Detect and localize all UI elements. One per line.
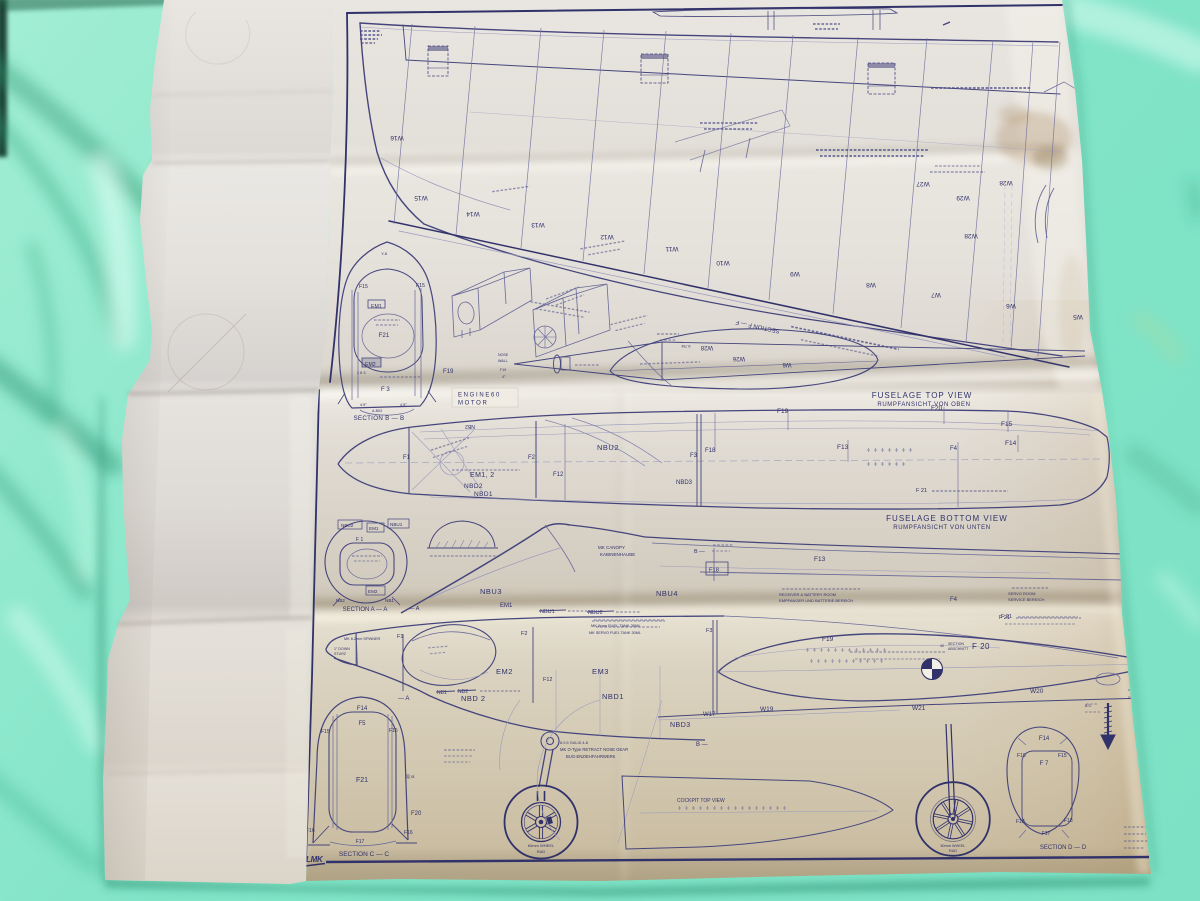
svg-text:F 1: F 1 bbox=[356, 537, 363, 543]
svg-text:STURZ: STURZ bbox=[334, 652, 347, 656]
svg-text:W21: W21 bbox=[912, 705, 926, 712]
svg-text:W13: W13 bbox=[531, 221, 545, 228]
svg-text:EM2: EM2 bbox=[368, 589, 378, 594]
svg-text:F15: F15 bbox=[1001, 421, 1013, 428]
svg-text:F1: F1 bbox=[403, 455, 411, 461]
svg-text:MK 6.2mm SPINNER: MK 6.2mm SPINNER bbox=[344, 637, 381, 641]
svg-text:SECTION: SECTION bbox=[948, 642, 964, 646]
svg-text:Y-8: Y-8 bbox=[381, 251, 388, 256]
svg-text:F14: F14 bbox=[1005, 440, 1017, 447]
svg-text:F 3: F 3 bbox=[381, 387, 390, 393]
svg-text:F13: F13 bbox=[814, 556, 826, 563]
svg-text:KABINENHAUBE: KABINENHAUBE bbox=[600, 552, 635, 557]
svg-text:W5: W5 bbox=[1073, 313, 1083, 320]
svg-text:W28: W28 bbox=[964, 232, 978, 239]
svg-text:W6: W6 bbox=[782, 361, 792, 367]
svg-text:F17: F17 bbox=[1042, 831, 1051, 837]
svg-text:B —: B — bbox=[694, 549, 705, 555]
svg-text:MK SERVO FUEL TANK 30ML: MK SERVO FUEL TANK 30ML bbox=[589, 631, 641, 635]
svg-text:F17: F17 bbox=[356, 839, 365, 845]
svg-text:F12: F12 bbox=[553, 472, 564, 478]
svg-text:W14: W14 bbox=[466, 210, 480, 217]
svg-text:SECTION D — D: SECTION D — D bbox=[1040, 845, 1087, 851]
svg-text:8-9.5 GULID 4-8: 8-9.5 GULID 4-8 bbox=[560, 741, 588, 745]
svg-text:F3: F3 bbox=[690, 453, 698, 459]
svg-text:F15: F15 bbox=[389, 728, 398, 734]
svg-text:NB1: NB1 bbox=[437, 690, 447, 696]
svg-text:BUG-ENZIEHFAHRWERK: BUG-ENZIEHFAHRWERK bbox=[566, 754, 616, 759]
svg-text:F1: F1 bbox=[397, 634, 403, 640]
svg-text:F5: F5 bbox=[358, 721, 366, 727]
svg-text:W29: W29 bbox=[956, 194, 970, 201]
svg-text:COCKPIT TOP VIEW: COCKPIT TOP VIEW bbox=[677, 798, 725, 804]
svg-text:F19: F19 bbox=[822, 636, 834, 643]
svg-text:EMPFANGER UND BATTERIE BEREIC: EMPFANGER UND BATTERIE BEREICH bbox=[779, 598, 853, 603]
svg-text:W20: W20 bbox=[1030, 688, 1044, 695]
svg-text:見 Ø.: 見 Ø. bbox=[406, 773, 415, 779]
svg-text:NBU4: NBU4 bbox=[656, 589, 678, 598]
svg-text:1 8 3: 1 8 3 bbox=[357, 371, 365, 375]
svg-text:F 7: F 7 bbox=[1040, 761, 1049, 767]
svg-text:ABSCHNITT: ABSCHNITT bbox=[948, 647, 969, 651]
svg-text:NBD 2: NBD 2 bbox=[461, 694, 486, 703]
svg-text:F4: F4 bbox=[950, 597, 958, 603]
svg-text:LMK: LMK bbox=[306, 855, 324, 864]
svg-text:F 21: F 21 bbox=[1001, 614, 1012, 620]
svg-text:W11: W11 bbox=[665, 245, 678, 252]
svg-text:SECTION A — A: SECTION A — A bbox=[343, 607, 388, 613]
svg-text:F19: F19 bbox=[777, 408, 789, 415]
svg-text:RUMPFANSICHT VON UNTEN: RUMPFANSICHT VON UNTEN bbox=[893, 525, 990, 531]
svg-text:MK CANOPY: MK CANOPY bbox=[598, 545, 625, 550]
svg-text:NBD2: NBD2 bbox=[464, 483, 483, 490]
svg-text:F19: F19 bbox=[443, 369, 454, 375]
svg-text:A-B03: A-B03 bbox=[372, 409, 382, 413]
svg-text:EM3: EM3 bbox=[592, 667, 609, 676]
svg-text:W28: W28 bbox=[700, 344, 713, 350]
svg-text:RUMPFANSICHT VON OBEN: RUMPFANSICHT VON OBEN bbox=[877, 402, 970, 408]
svg-text:F15: F15 bbox=[321, 729, 330, 735]
svg-text:F21: F21 bbox=[379, 332, 390, 339]
svg-text:W15: W15 bbox=[414, 194, 428, 201]
svg-text:NBD3: NBD3 bbox=[670, 722, 691, 729]
svg-text:W28: W28 bbox=[999, 179, 1013, 186]
svg-text:ND2: ND2 bbox=[458, 689, 468, 695]
svg-text:F18: F18 bbox=[1016, 819, 1025, 825]
svg-text:F16: F16 bbox=[404, 830, 413, 836]
svg-text:NBU3: NBU3 bbox=[480, 587, 502, 596]
svg-text:60mm WHEEL: 60mm WHEEL bbox=[528, 843, 555, 848]
svg-text:F16: F16 bbox=[306, 828, 315, 834]
svg-text:F14: F14 bbox=[357, 706, 368, 712]
svg-text:EM2: EM2 bbox=[365, 362, 376, 368]
svg-text:B —: B — bbox=[696, 742, 708, 748]
svg-text:WALL: WALL bbox=[498, 359, 508, 363]
svg-text:W8: W8 bbox=[866, 281, 876, 288]
svg-text:F 21: F 21 bbox=[916, 488, 927, 494]
svg-text:FUSELAGE TOP VIEW: FUSELAGE TOP VIEW bbox=[872, 391, 973, 400]
svg-text:4°: 4° bbox=[502, 375, 506, 379]
svg-text:W6: W6 bbox=[1006, 302, 1016, 309]
svg-text:NBU1: NBU1 bbox=[390, 522, 403, 527]
svg-text:F 20: F 20 bbox=[972, 642, 990, 651]
svg-text:F18: F18 bbox=[705, 448, 716, 454]
svg-text:F10: F10 bbox=[1017, 753, 1026, 759]
svg-text:EM1: EM1 bbox=[369, 526, 379, 531]
svg-text:NBD1: NBD1 bbox=[602, 692, 624, 701]
svg-text:F15: F15 bbox=[1058, 753, 1067, 759]
svg-text:W12: W12 bbox=[600, 233, 614, 240]
svg-text:NB2: NB2 bbox=[465, 423, 475, 429]
svg-text:RAD: RAD bbox=[949, 849, 957, 853]
svg-text:F12: F12 bbox=[543, 677, 552, 683]
svg-text:F21: F21 bbox=[356, 777, 368, 784]
svg-text:W27: W27 bbox=[916, 180, 930, 187]
svg-text:F4: F4 bbox=[950, 446, 958, 452]
svg-text:SECTION B — B: SECTION B — B bbox=[353, 415, 404, 422]
svg-text:EM1: EM1 bbox=[371, 304, 382, 310]
svg-text:F20: F20 bbox=[411, 811, 422, 817]
svg-text:E N G I N E 6 0: E N G I N E 6 0 bbox=[458, 393, 500, 399]
svg-text:RECEIVER & BATTERY ROOM: RECEIVER & BATTERY ROOM bbox=[779, 592, 836, 597]
svg-text:W26: W26 bbox=[732, 355, 745, 361]
svg-text:B.S.: B.S. bbox=[1085, 704, 1092, 708]
svg-text:NOSE: NOSE bbox=[498, 353, 509, 357]
svg-text:F13: F13 bbox=[837, 444, 849, 451]
svg-text:EM1, 2: EM1, 2 bbox=[470, 472, 495, 479]
svg-text:1° DOWN: 1° DOWN bbox=[334, 647, 350, 651]
svg-text:W16: W16 bbox=[390, 134, 404, 141]
svg-text:F15: F15 bbox=[359, 284, 368, 290]
svg-text:NBU2: NBU2 bbox=[588, 610, 603, 616]
svg-text:RAD: RAD bbox=[537, 849, 546, 854]
svg-text:NBU2: NBU2 bbox=[341, 523, 354, 528]
svg-text:NBD3: NBD3 bbox=[676, 480, 693, 486]
svg-text:W17: W17 bbox=[703, 712, 716, 718]
svg-text:NB1: NB1 bbox=[385, 598, 394, 603]
svg-text:NBU1: NBU1 bbox=[540, 609, 555, 615]
svg-text:NBU2: NBU2 bbox=[597, 443, 619, 452]
svg-text:F3: F3 bbox=[706, 628, 712, 634]
svg-text:F19: F19 bbox=[500, 368, 506, 372]
svg-text:60mm WHEEL: 60mm WHEEL bbox=[940, 844, 965, 848]
svg-text:NB2: NB2 bbox=[336, 598, 345, 603]
svg-text:40: 40 bbox=[940, 644, 944, 648]
svg-text:FUSELAGE BOTTOM VIEW: FUSELAGE BOTTOM VIEW bbox=[886, 514, 1008, 523]
svg-text:— A: — A bbox=[398, 696, 409, 702]
svg-text:4.5°: 4.5° bbox=[360, 403, 367, 407]
svg-text:F2: F2 bbox=[521, 631, 527, 637]
svg-text:EM1: EM1 bbox=[500, 603, 513, 609]
svg-text:SERVICE BEREICH: SERVICE BEREICH bbox=[1008, 597, 1044, 602]
svg-text:F2: F2 bbox=[528, 455, 536, 461]
svg-text:NBD1: NBD1 bbox=[474, 491, 493, 498]
svg-text:W10: W10 bbox=[716, 259, 730, 266]
svg-text:MK O-Type RETRACT NOSE GEAR: MK O-Type RETRACT NOSE GEAR bbox=[560, 747, 628, 752]
svg-text:F18: F18 bbox=[709, 568, 719, 574]
svg-text:5.7M: 5.7M bbox=[682, 344, 691, 349]
svg-text:SERVO ROOM: SERVO ROOM bbox=[1008, 591, 1036, 596]
svg-text:M O T O R: M O T O R bbox=[458, 401, 487, 407]
svg-text:4.5°: 4.5° bbox=[400, 403, 407, 407]
svg-text:F14: F14 bbox=[1039, 736, 1050, 742]
svg-text:EM2: EM2 bbox=[496, 667, 513, 676]
svg-text:F15: F15 bbox=[416, 283, 425, 289]
svg-text:SECTION C — C: SECTION C — C bbox=[339, 851, 390, 858]
svg-text:F18: F18 bbox=[1064, 818, 1073, 824]
svg-text:W7: W7 bbox=[931, 291, 941, 298]
svg-text:W9: W9 bbox=[790, 270, 800, 277]
